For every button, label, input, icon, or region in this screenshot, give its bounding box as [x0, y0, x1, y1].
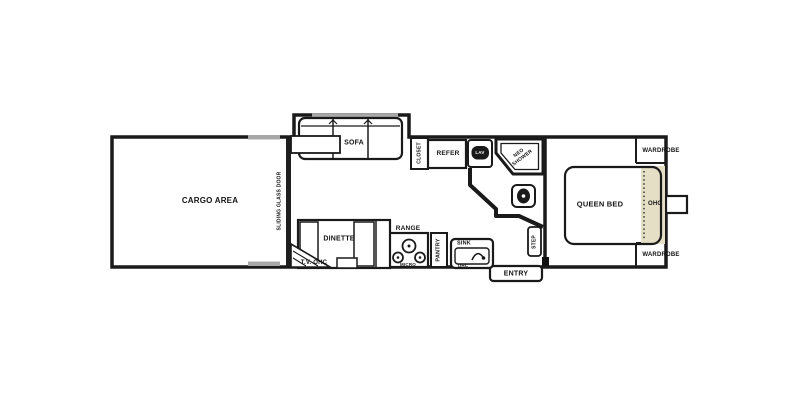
range-label: RANGE: [396, 226, 420, 233]
entry-door-hinge: [542, 257, 549, 266]
wardrobe-front-label: WARDROBE: [642, 148, 679, 154]
tv-ohc-label: T.V. OHC: [301, 260, 327, 266]
sofa-label: SOFA: [344, 140, 364, 147]
toilet-icon: [512, 185, 535, 207]
sink-ohc-label: OHC: [458, 263, 469, 268]
floorplan-page: CARGO AREA SLIDING GLASS DOOR SOFA CLOSE…: [0, 0, 800, 400]
floorplan-drawing: [0, 0, 800, 400]
bed-ohc-label: OHC: [648, 201, 662, 207]
closet-label: CLOSET: [417, 142, 422, 163]
cargo-area-label: CARGO AREA: [182, 197, 238, 205]
entry-label: ENTRY: [504, 270, 528, 277]
refrigerator-label: REFER: [436, 151, 459, 158]
sliding-glass-door-label: SLIDING GLASS DOOR: [278, 172, 283, 231]
step-label: STEP: [532, 235, 537, 249]
sofa-slideout: [291, 118, 402, 159]
dinette-label: DINETTE: [323, 236, 354, 243]
queen-bed-label: QUEEN BED: [577, 200, 623, 208]
wardrobe-rear-label: WARDROBE: [642, 252, 679, 258]
pantry-label: PANTRY: [436, 238, 442, 261]
micro-label: MICRO: [400, 262, 416, 267]
sink-label: SINK: [457, 241, 471, 247]
rear-bumper: [666, 196, 687, 213]
sofa-end-table: [291, 136, 340, 153]
lav-label: LAV: [475, 150, 484, 155]
